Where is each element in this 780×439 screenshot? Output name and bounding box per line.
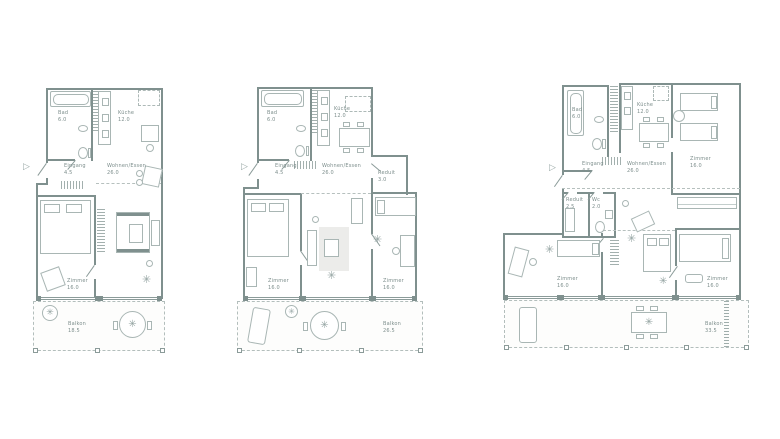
pillow [377, 200, 385, 214]
floor-lamp [146, 260, 153, 267]
dining-table [639, 123, 669, 142]
room-area: 6.0 [572, 114, 582, 121]
bed [680, 123, 718, 141]
chair [643, 143, 650, 148]
pillow [269, 203, 284, 212]
coat-rack [61, 181, 83, 189]
entry-door-gap [257, 163, 259, 179]
room-label-balkon: Balkon 33.5 [705, 321, 723, 335]
room-area: 16.0 [268, 285, 289, 292]
wall [503, 233, 505, 299]
room-name: Küche [334, 106, 350, 113]
chair [303, 322, 308, 331]
wall [243, 193, 301, 195]
wardrobe [610, 86, 618, 134]
toilet [78, 147, 88, 159]
plant-icon: ✳ [327, 269, 336, 282]
room-label-eingang: Eingang 4.5 [275, 163, 297, 177]
room-area: 12.0 [637, 109, 653, 116]
room-area: 6.0 [267, 117, 277, 124]
wall [243, 187, 245, 299]
wall [675, 228, 741, 230]
chair [636, 334, 644, 339]
room-label-zimmer-1: Zimmer 16.0 [268, 278, 289, 292]
chair [357, 148, 364, 153]
room-label-bad: Bad 6.0 [572, 107, 582, 121]
coat-rack [602, 157, 622, 165]
bathtub [261, 90, 304, 107]
toilet [595, 221, 605, 233]
desk [400, 235, 415, 267]
room-area: 26.5 [383, 328, 401, 335]
room-name: Reduit [378, 170, 395, 177]
room-name: Küche [637, 102, 653, 109]
daybed [643, 234, 671, 272]
plant-icon: ✳ [659, 276, 667, 287]
room-label-eingang: Eingang 4.5 [64, 163, 86, 177]
kitchen-counter [98, 91, 111, 145]
armchair [151, 220, 160, 246]
upper-cabinet-dashed [653, 86, 669, 101]
ottoman [685, 274, 703, 283]
dining-table [339, 128, 370, 147]
appliance [102, 130, 109, 138]
kitchen-sink [321, 113, 328, 121]
chair [146, 144, 154, 152]
coffee-table [129, 224, 143, 243]
wall [371, 249, 373, 299]
toilet-tank [306, 146, 309, 156]
plant-icon: ✳ [627, 232, 636, 245]
chair [341, 322, 346, 331]
open-boundary [562, 188, 740, 189]
balcony-post [33, 348, 38, 353]
plant-icon: ✳ [46, 308, 54, 318]
room-label-wohnen-essen: Wohnen/Essen 26.0 [322, 163, 361, 177]
room-area: 4.5 [64, 170, 86, 177]
round-table: ✳ [310, 311, 339, 340]
room-area: 4.5 [582, 168, 604, 175]
pillow [711, 126, 717, 139]
wall [257, 159, 289, 161]
wall [371, 192, 417, 194]
balcony-post [297, 348, 302, 353]
room-label-balkon: Balkon 18.5 [68, 321, 86, 335]
room-area: 26.0 [322, 170, 361, 177]
plant-icon: ✳ [142, 273, 151, 286]
wall [94, 195, 96, 265]
room-area: 16.0 [690, 163, 711, 170]
wall [562, 85, 564, 172]
pillow [711, 96, 717, 109]
stove [624, 92, 631, 100]
room-name: Eingang [64, 163, 86, 170]
room-area: 16.0 [383, 285, 404, 292]
wall [671, 83, 673, 138]
round-table: ✳ [119, 311, 146, 338]
room-name: Wohnen/Essen [107, 163, 146, 170]
kitchen-table [141, 125, 159, 142]
room-label-kueche: Küche 12.0 [334, 106, 350, 120]
entry-door-gap [46, 163, 48, 178]
room-label-kueche: Küche 12.0 [637, 102, 653, 116]
room-label-zimmer: Zimmer 16.0 [67, 278, 88, 292]
room-area: 3.0 [378, 177, 395, 184]
sofa-group [116, 212, 150, 253]
wall [371, 87, 373, 156]
wall [671, 152, 673, 193]
balcony-post [624, 345, 629, 350]
balcony-post [418, 348, 423, 353]
kitchen-counter [317, 90, 330, 146]
room-name: Zimmer [707, 276, 728, 283]
room-area: 12.0 [118, 117, 134, 124]
bathtub-basin [53, 94, 89, 105]
room-name: Wc [592, 197, 601, 204]
entry-arrow-icon: ▷ [549, 164, 556, 173]
room-label-wohnen-essen: Wohnen/Essen 26.0 [627, 161, 666, 175]
room-name: Eingang [275, 163, 297, 170]
shelf [565, 208, 575, 232]
sink [594, 116, 604, 123]
chair [643, 117, 650, 122]
sofa-back [117, 249, 149, 252]
dining-table: ✳ [631, 312, 667, 333]
balcony-post [504, 345, 509, 350]
chair [636, 306, 644, 311]
chair [657, 117, 664, 122]
bed [247, 199, 289, 257]
chair [650, 306, 658, 311]
plant-icon: ✳ [320, 320, 328, 331]
floor-plan-sheet: ▷ [0, 0, 780, 439]
sink [296, 125, 306, 132]
room-label-wc: Wc 2.0 [592, 197, 601, 211]
wall [257, 183, 259, 189]
room-label-reduit: Reduit 2.5 [566, 197, 583, 211]
room-area: 16.0 [67, 285, 88, 292]
chair [343, 148, 350, 153]
balcony-post [744, 345, 749, 350]
room-label-zimmer-1: Zimmer 16.0 [690, 156, 711, 170]
wall [36, 195, 96, 197]
chair [147, 321, 152, 330]
stove [321, 97, 328, 105]
room-label-reduit: Reduit 3.0 [378, 170, 395, 184]
wardrobe [97, 209, 105, 253]
room-label-bad: Bad 6.0 [58, 110, 68, 124]
window-band [243, 297, 417, 300]
wall [614, 192, 616, 238]
chair [529, 258, 537, 266]
room-area: 6.0 [58, 117, 68, 124]
room-name: Wohnen/Essen [627, 161, 666, 168]
wall [607, 85, 609, 157]
kitchen-counter [621, 86, 633, 130]
window-band [503, 296, 741, 299]
wall [371, 194, 373, 234]
wall [619, 83, 741, 85]
room-name: Balkon [705, 321, 723, 328]
room-name: Zimmer [557, 276, 578, 283]
toilet-tank [88, 148, 91, 158]
room-name: Zimmer [690, 156, 711, 163]
room-area: 4.5 [275, 170, 297, 177]
pillow [66, 204, 82, 213]
bed [375, 197, 416, 216]
coat-rack [294, 161, 316, 169]
bed [679, 234, 731, 262]
room-area: 18.5 [68, 328, 86, 335]
floor-lamp [312, 216, 319, 223]
pillow [722, 238, 729, 259]
wall [300, 193, 302, 251]
plant-icon: ✳ [545, 243, 554, 256]
entry-arrow-icon: ▷ [241, 163, 248, 172]
balcony-post [237, 348, 242, 353]
wall [406, 155, 408, 195]
plant-icon: ✳ [128, 319, 136, 330]
entry-arrow-icon: ▷ [23, 163, 30, 172]
wardrobe [610, 240, 619, 266]
room-name: Zimmer [383, 278, 404, 285]
plant-icon: ✳ [288, 307, 295, 316]
door-leaf [86, 265, 95, 277]
plant-pot: ✳ [285, 305, 298, 318]
sofa-back [117, 213, 149, 216]
chair [343, 122, 350, 127]
armchair [40, 266, 66, 292]
room-area: 2.5 [566, 204, 583, 211]
room-label-balkon: Balkon 26.5 [383, 321, 401, 335]
wall [36, 183, 38, 299]
room-name: Wohnen/Essen [322, 163, 361, 170]
wall [371, 155, 408, 157]
chair [357, 122, 364, 127]
chair [650, 334, 658, 339]
sideboard-line [678, 204, 736, 205]
pillow [44, 204, 60, 213]
chair [136, 179, 143, 186]
bed [557, 240, 600, 257]
balcony-post [359, 348, 364, 353]
wall [161, 88, 163, 299]
desk [508, 247, 530, 278]
toilet [295, 145, 305, 157]
floor-lamp [622, 200, 629, 207]
floor-plan-middle: ▷ [237, 83, 425, 351]
chair [657, 143, 664, 148]
room-name: Eingang [582, 161, 604, 168]
pillow [251, 203, 266, 212]
pillow [592, 243, 599, 255]
wall [562, 85, 609, 87]
room-label-zimmer-3: Zimmer 16.0 [707, 276, 728, 290]
wall [300, 265, 302, 299]
tv-sideboard [351, 198, 363, 224]
room-name: Zimmer [67, 278, 88, 285]
sink [78, 125, 88, 132]
wall [739, 83, 741, 299]
room-name: Bad [572, 107, 582, 114]
wall [601, 252, 603, 299]
chair [392, 247, 400, 255]
dresser [246, 267, 257, 287]
room-label-kueche: Küche 12.0 [118, 110, 134, 124]
open-boundary [301, 193, 371, 194]
entry-door-gap [562, 175, 564, 188]
room-area: 2.0 [592, 204, 601, 211]
toilet [592, 138, 602, 150]
room-area: 26.0 [627, 168, 666, 175]
room-name: Bad [58, 110, 68, 117]
bathtub-basin [264, 93, 302, 105]
kitchen-sink [624, 107, 631, 115]
bathtub [50, 91, 91, 107]
upper-cabinet-dashed [138, 90, 160, 106]
plant-icon: ✳ [645, 317, 653, 328]
balcony-post [160, 348, 165, 353]
room-area: 26.0 [107, 170, 146, 177]
room-name: Bad [267, 110, 277, 117]
stool [673, 110, 685, 122]
coffee-table [324, 239, 339, 257]
wall [46, 159, 75, 161]
room-name: Balkon [383, 321, 401, 328]
wall [257, 87, 373, 89]
toilet-tank [602, 139, 606, 149]
balcony-post [95, 348, 100, 353]
door-gap [594, 192, 603, 194]
room-area: 16.0 [707, 283, 728, 290]
sofa [307, 230, 317, 266]
room-label-wohnen-essen: Wohnen/Essen 26.0 [107, 163, 146, 177]
floor-plan-left: ▷ [33, 83, 169, 351]
pillow [659, 238, 669, 246]
bed [40, 200, 91, 254]
kitchen-sink [102, 114, 109, 122]
room-label-zimmer-2: Zimmer 16.0 [383, 278, 404, 292]
wall [503, 233, 562, 235]
balcony-post [564, 345, 569, 350]
room-label-bad: Bad 6.0 [267, 110, 277, 124]
plant-icon: ✳ [373, 233, 382, 246]
balcony-post [684, 345, 689, 350]
lounge-chair [519, 307, 537, 343]
sink [605, 210, 613, 219]
room-name: Zimmer [268, 278, 289, 285]
sideboard [677, 197, 737, 209]
room-name: Balkon [68, 321, 86, 328]
room-area: 16.0 [557, 283, 578, 290]
room-area: 33.5 [705, 328, 723, 335]
stove [102, 98, 109, 106]
bed [680, 93, 718, 111]
plant-pot: ✳ [42, 305, 58, 321]
door-gap [568, 192, 577, 194]
chair [113, 321, 118, 330]
wall [675, 228, 677, 266]
room-name: Reduit [566, 197, 583, 204]
room-area: 12.0 [334, 113, 350, 120]
wall [671, 193, 741, 195]
pillow [647, 238, 657, 246]
appliance [321, 129, 328, 137]
floor-plan-right: ▷ [502, 80, 750, 350]
room-label-eingang: Eingang 4.5 [582, 161, 604, 175]
room-name: Küche [118, 110, 134, 117]
room-label-zimmer-2: Zimmer 16.0 [557, 276, 578, 290]
climbing-plant [724, 301, 729, 347]
